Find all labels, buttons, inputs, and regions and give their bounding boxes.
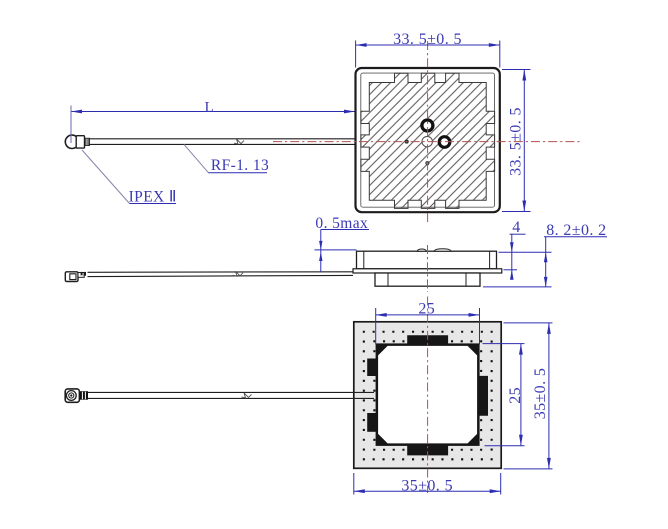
svg-text:4: 4 [512,219,520,236]
svg-text:L: L [205,100,215,116]
svg-text:35±0. 5: 35±0. 5 [401,477,453,494]
svg-text:33. 5±0. 5: 33. 5±0. 5 [393,31,462,48]
svg-text:25: 25 [418,301,435,318]
svg-text:8. 2±0. 2: 8. 2±0. 2 [546,222,606,239]
svg-text:33. 5±0. 5: 33. 5±0. 5 [508,107,525,176]
svg-text:35±0. 5: 35±0. 5 [532,368,549,420]
svg-text:IPEX Ⅱ: IPEX Ⅱ [129,189,177,206]
svg-text:25: 25 [507,387,524,404]
svg-text:RF-1. 13: RF-1. 13 [211,157,269,174]
